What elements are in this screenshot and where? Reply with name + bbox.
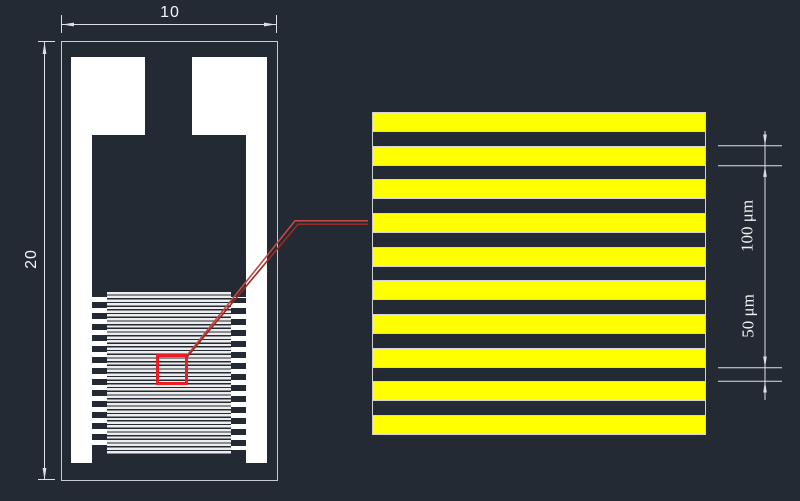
electrode-finger-stripe [373, 415, 705, 435]
right-bus-bar [246, 135, 267, 463]
electrode-finger-stripe [373, 280, 705, 300]
electrode-finger-stripe [373, 247, 705, 267]
cad-canvas: { "scene": { "background_color": "#242a3… [0, 0, 800, 501]
left-bus-bar [71, 135, 92, 463]
electrode-finger-stripe [373, 213, 705, 233]
device-height-label: 20 [24, 249, 40, 269]
electrode-finger-stripe [373, 381, 705, 401]
device-height-dimension [38, 42, 55, 481]
finger-gap-label: 50 μm [740, 294, 757, 338]
electrode-finger-stripe [373, 314, 705, 334]
device-width-label: 10 [160, 5, 180, 21]
finger-width-label: 100 μm [739, 200, 756, 252]
electrode-finger-stripe [373, 146, 705, 166]
zoom-region-box [156, 354, 188, 385]
right-finger-roots [231, 297, 246, 450]
right-electrode-pad [192, 57, 267, 135]
electrode-finger-stripe [373, 348, 705, 368]
electrode-finger-stripe [373, 179, 705, 199]
magnified-finger-view [372, 112, 706, 435]
electrode-finger-stripe [373, 112, 705, 132]
left-electrode-pad [71, 57, 145, 135]
finger-dimensions [718, 131, 782, 400]
left-finger-roots [92, 297, 107, 450]
